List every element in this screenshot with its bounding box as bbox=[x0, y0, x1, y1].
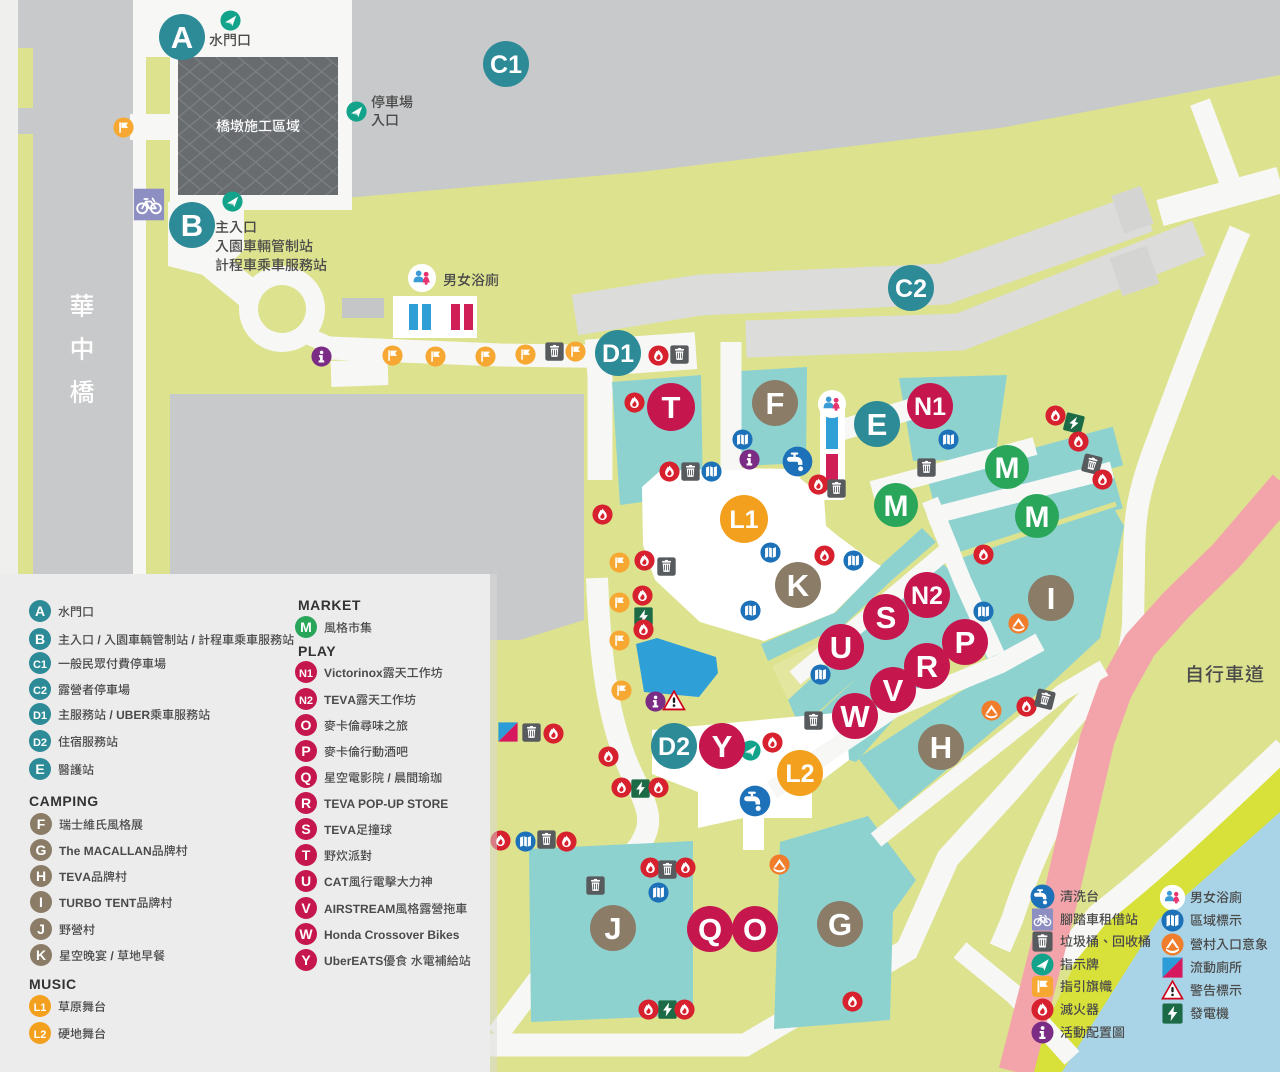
svg-text:R: R bbox=[916, 649, 938, 684]
svg-text:T: T bbox=[302, 847, 311, 863]
svg-text:T: T bbox=[662, 390, 681, 425]
svg-text:N1: N1 bbox=[299, 668, 313, 680]
svg-text:Q: Q bbox=[301, 769, 312, 785]
svg-text:N2: N2 bbox=[911, 582, 943, 610]
svg-text:C2: C2 bbox=[33, 685, 47, 697]
svg-text:L1: L1 bbox=[34, 1002, 47, 1014]
svg-text:N2: N2 bbox=[299, 695, 313, 707]
svg-text:L1: L1 bbox=[729, 506, 758, 534]
svg-text:D2: D2 bbox=[658, 733, 690, 761]
svg-text:K: K bbox=[36, 947, 46, 963]
svg-text:I: I bbox=[39, 894, 43, 910]
svg-text:Honda Crossover Bikes: Honda Crossover Bikes bbox=[324, 928, 460, 942]
svg-text:D2: D2 bbox=[33, 737, 47, 749]
svg-text:E: E bbox=[867, 407, 888, 442]
svg-text:L2: L2 bbox=[785, 760, 814, 788]
svg-text:U: U bbox=[301, 873, 311, 889]
svg-text:TEVA POP-UP STORE: TEVA POP-UP STORE bbox=[324, 797, 448, 811]
svg-text:CAMPING: CAMPING bbox=[29, 793, 99, 809]
svg-text:N1: N1 bbox=[914, 393, 946, 421]
svg-text:R: R bbox=[301, 795, 311, 811]
svg-text:M: M bbox=[300, 619, 312, 635]
svg-text:M: M bbox=[995, 452, 1020, 485]
svg-text:H: H bbox=[930, 730, 952, 765]
svg-text:B: B bbox=[181, 208, 203, 243]
svg-text:V: V bbox=[883, 673, 904, 708]
svg-text:C1: C1 bbox=[490, 51, 522, 79]
svg-text:H: H bbox=[36, 868, 46, 884]
svg-text:Y: Y bbox=[301, 952, 311, 968]
svg-text:O: O bbox=[743, 912, 767, 947]
svg-text:L2: L2 bbox=[34, 1029, 47, 1041]
svg-text:J: J bbox=[37, 921, 45, 937]
svg-text:F: F bbox=[766, 386, 785, 421]
svg-text:MUSIC: MUSIC bbox=[29, 976, 77, 992]
svg-text:D1: D1 bbox=[33, 710, 47, 722]
svg-text:E: E bbox=[35, 761, 44, 777]
svg-text:O: O bbox=[301, 717, 312, 733]
svg-text:PLAY: PLAY bbox=[298, 643, 336, 659]
svg-text:A: A bbox=[35, 603, 45, 619]
svg-text:M: M bbox=[884, 490, 909, 523]
svg-text:C1: C1 bbox=[33, 659, 47, 671]
svg-text:W: W bbox=[299, 926, 313, 942]
svg-text:A: A bbox=[171, 20, 193, 55]
svg-text:F: F bbox=[37, 816, 46, 832]
svg-text:C2: C2 bbox=[895, 275, 927, 303]
svg-text:B: B bbox=[35, 631, 45, 647]
svg-text:U: U bbox=[830, 630, 852, 665]
svg-text:MARKET: MARKET bbox=[298, 597, 361, 613]
svg-text:K: K bbox=[787, 568, 810, 603]
svg-text:D1: D1 bbox=[602, 340, 634, 368]
svg-text:J: J bbox=[604, 911, 621, 946]
svg-text:G: G bbox=[36, 842, 47, 858]
svg-text:S: S bbox=[301, 821, 310, 837]
svg-text:P: P bbox=[301, 743, 310, 759]
svg-text:G: G bbox=[828, 907, 852, 942]
svg-text:M: M bbox=[1025, 501, 1050, 534]
svg-text:V: V bbox=[301, 900, 311, 916]
svg-text:W: W bbox=[840, 699, 870, 734]
svg-text:P: P bbox=[955, 625, 976, 660]
svg-text:S: S bbox=[876, 600, 897, 635]
svg-text:Q: Q bbox=[698, 912, 722, 947]
svg-text:I: I bbox=[1047, 581, 1056, 616]
svg-text:Y: Y bbox=[712, 729, 733, 764]
